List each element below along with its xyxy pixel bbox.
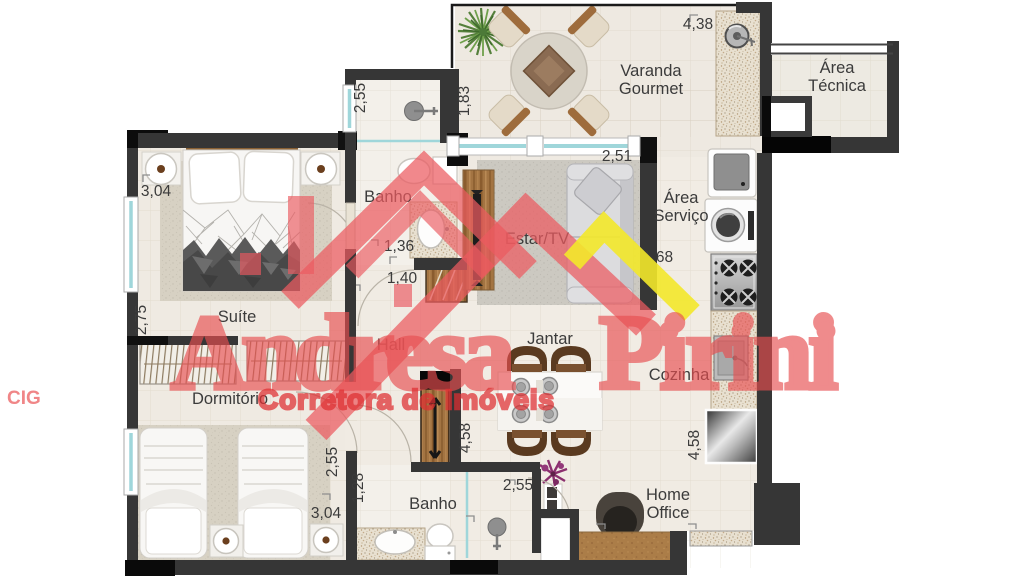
svg-text:2,75: 2,75 xyxy=(133,305,150,335)
svg-text:Gourmet: Gourmet xyxy=(619,80,684,98)
svg-text:4,58: 4,58 xyxy=(457,423,474,453)
svg-text:Varanda: Varanda xyxy=(620,62,682,80)
svg-text:3,04: 3,04 xyxy=(311,505,342,522)
svg-text:Jantar: Jantar xyxy=(527,330,573,348)
svg-text:2,55: 2,55 xyxy=(352,83,369,113)
svg-text:Corretora de Imóveis: Corretora de Imóveis xyxy=(258,384,554,415)
svg-text:2,51: 2,51 xyxy=(602,148,632,165)
svg-text:3,04: 3,04 xyxy=(141,183,172,200)
svg-text:4,58: 4,58 xyxy=(686,430,703,460)
svg-text:Pirini: Pirini xyxy=(599,294,838,411)
svg-text:Serviço: Serviço xyxy=(653,207,708,225)
svg-text:Banho: Banho xyxy=(409,495,457,513)
svg-text:Técnica: Técnica xyxy=(808,77,867,95)
svg-text:4,38: 4,38 xyxy=(683,16,713,33)
svg-text:Área: Área xyxy=(820,58,856,77)
svg-text:1,28: 1,28 xyxy=(350,473,367,503)
svg-text:Área: Área xyxy=(664,188,700,207)
svg-text:CIG: CIG xyxy=(7,388,41,409)
svg-text:2,55: 2,55 xyxy=(503,477,533,494)
svg-text:2,55: 2,55 xyxy=(324,447,341,477)
svg-text:Home: Home xyxy=(646,486,690,504)
svg-text:Office: Office xyxy=(647,504,690,522)
svg-text:1,83: 1,83 xyxy=(456,86,473,116)
